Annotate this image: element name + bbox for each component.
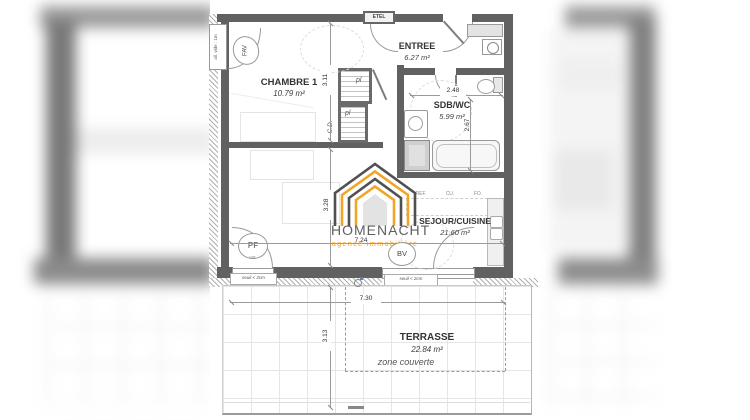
dim-sejour-height: 3.28: [322, 190, 332, 220]
bathtub-inner: [436, 144, 497, 168]
dim-terrasse-width: 7.30: [351, 294, 381, 304]
sink-icon: [490, 228, 503, 240]
furniture-outline: [240, 112, 316, 142]
cu-label: CU.: [441, 191, 459, 197]
dim-terrasse-height: 3.13: [321, 321, 331, 351]
dim-sdb-width: 2.48: [440, 86, 466, 96]
wc-bowl-icon: [477, 79, 495, 94]
furniture-outline: [250, 150, 314, 180]
wall-segment: [456, 68, 504, 75]
terrace-edge-mark: [348, 406, 364, 409]
dim-chambre-height: 3.11: [321, 65, 331, 95]
pf-vr-label: VR: [245, 255, 260, 260]
water-heater-icon: [482, 39, 502, 55]
fo-label: FO.: [469, 191, 487, 197]
kitchen-cabinet-outline: [406, 198, 488, 216]
wall-segment: [504, 14, 513, 277]
zone-couverte-dash: [345, 287, 346, 371]
room-area-terrasse: 22.84 m²: [398, 345, 456, 354]
dim-sejour-width: 7.24: [347, 236, 375, 246]
agency-logo-name: HOMENACHT: [331, 222, 419, 238]
room-area-chambre: 10.79 m²: [261, 89, 317, 98]
entry-shelf: [467, 24, 503, 37]
agency-logo-icon: [333, 162, 417, 226]
wall-segment: [395, 14, 443, 22]
wall-segment: [403, 172, 504, 178]
wall-segment: [473, 267, 513, 278]
pl-lower-label: pl: [345, 110, 350, 117]
turning-circle: [300, 25, 364, 73]
room-label-entree: ENTREE: [385, 41, 449, 51]
closet-lower: [338, 104, 368, 143]
closet-door-leaf: [372, 69, 387, 100]
pl-upper-label: pl: [356, 77, 361, 84]
wall-segment: [217, 14, 365, 22]
floor-plan-image: seuil < 2cm seuil < 2cm ETEL all. vide :…: [0, 0, 750, 420]
room-label-sdb: SDB/WC: [420, 100, 484, 110]
zone-couverte-dash: [505, 287, 506, 371]
closet-upper: [338, 68, 372, 104]
zone-couverte-label: zone couverte: [364, 357, 448, 367]
bathtub-icon: [432, 140, 500, 171]
room-area-entree: 6.27 m²: [388, 53, 446, 62]
floor-plan: seuil < 2cm seuil < 2cm ETEL all. vide :…: [0, 0, 750, 420]
terrace-floor: [222, 285, 532, 415]
room-label-terrasse: TERRASSE: [392, 332, 462, 343]
dim-sdb-height: 2.67: [463, 109, 473, 141]
seuil-label-pf: seuil < 2cm: [230, 273, 277, 285]
terrace-edge-line: [222, 402, 530, 403]
room-label-chambre: CHAMBRE 1: [257, 77, 321, 88]
water-heater-dial: [487, 42, 499, 54]
room-area-sejour: 21.60 m²: [424, 228, 486, 237]
terrace-fixture-icon: [354, 279, 362, 287]
etel-box: ETEL: [363, 11, 395, 24]
zone-couverte-dash: [345, 371, 505, 372]
terrace-fixture-dot-icon: [360, 277, 363, 280]
washbasin-bowl-icon: [408, 116, 423, 131]
wall-segment: [404, 68, 435, 75]
all-vide-label: all. vide : 1m: [213, 14, 223, 80]
bv-tag: BV: [388, 242, 416, 266]
wall-segment: [272, 267, 382, 278]
fav-label: FAV: [233, 39, 260, 63]
